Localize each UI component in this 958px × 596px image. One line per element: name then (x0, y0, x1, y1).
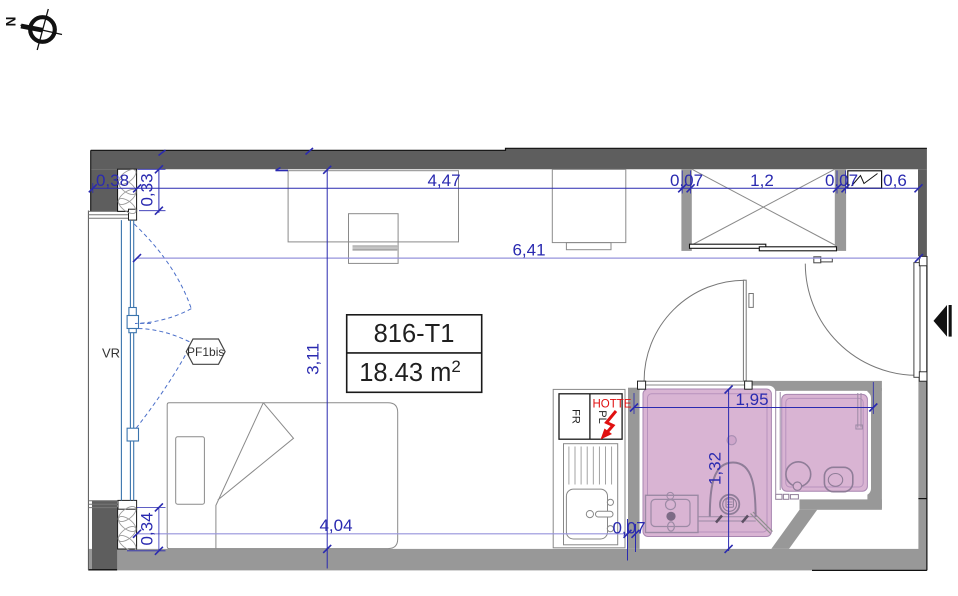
svg-text:VR: VR (102, 346, 120, 361)
svg-text:N: N (3, 17, 18, 27)
svg-text:FR: FR (570, 409, 582, 424)
svg-text:3,11: 3,11 (304, 343, 323, 375)
svg-text:0,07: 0,07 (825, 171, 858, 190)
svg-text:HOTTE: HOTTE (593, 399, 632, 411)
svg-text:4,04: 4,04 (319, 516, 352, 535)
svg-text:0,34: 0,34 (138, 512, 157, 545)
svg-text:0,6: 0,6 (883, 171, 907, 190)
svg-text:0,33: 0,33 (138, 173, 157, 206)
svg-text:6,41: 6,41 (512, 241, 545, 260)
svg-text:0,07: 0,07 (670, 171, 703, 190)
svg-text:18.43 m2: 18.43 m2 (359, 357, 461, 387)
svg-text:1,95: 1,95 (735, 390, 768, 409)
svg-text:PF1bis: PF1bis (187, 345, 224, 359)
svg-text:1,2: 1,2 (750, 171, 774, 190)
svg-text:0,07: 0,07 (612, 519, 645, 538)
svg-text:4,47: 4,47 (427, 171, 460, 190)
svg-text:816-T1: 816-T1 (374, 320, 455, 348)
svg-text:0,38: 0,38 (96, 171, 129, 190)
svg-text:1,32: 1,32 (706, 452, 725, 485)
